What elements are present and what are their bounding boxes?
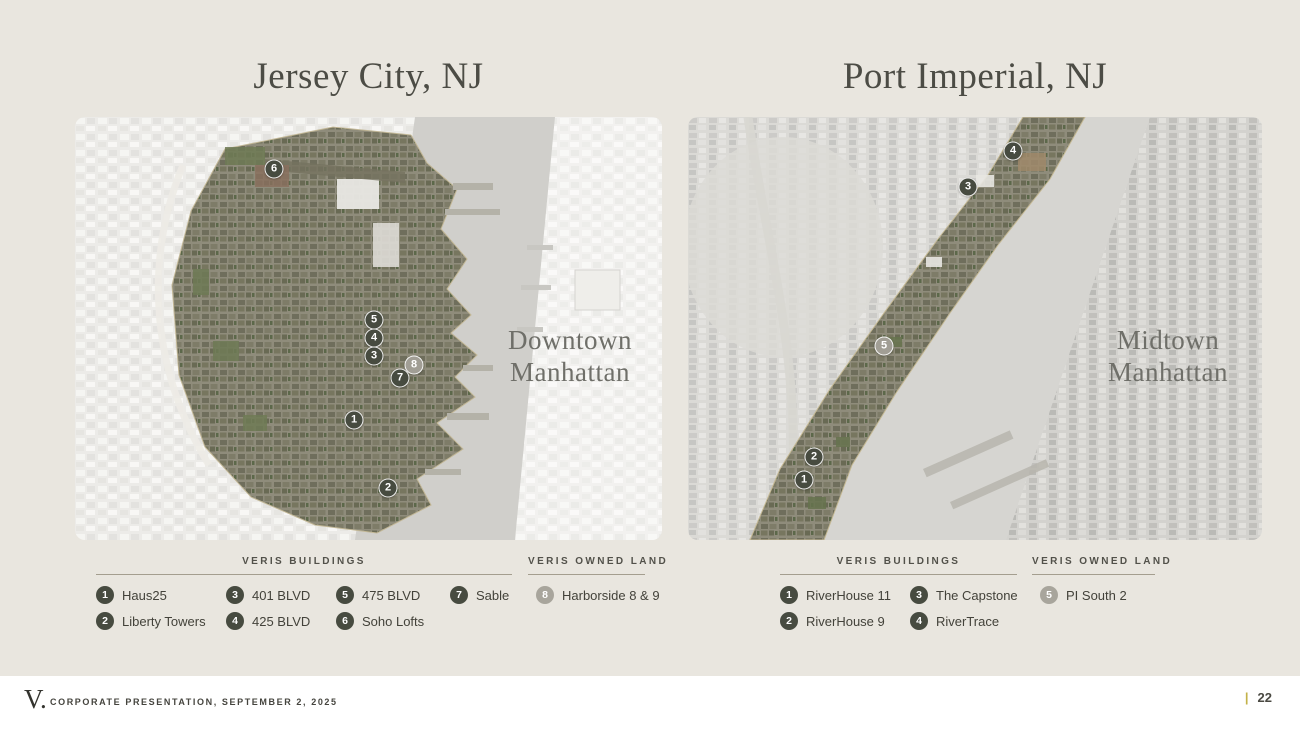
legend-header: VERIS OWNED LAND [528,556,645,575]
map-title-port-imperial: Port Imperial, NJ [688,55,1262,98]
legend-header: VERIS BUILDINGS [96,556,512,575]
legend-marker-5: 5 [1040,586,1058,604]
map-jersey-city[interactable]: Downtown Manhattan 65438712 [75,117,662,540]
legend-marker-2: 2 [780,612,798,630]
legend-marker-8: 8 [536,586,554,604]
legend-marker-4: 4 [226,612,244,630]
map-marker-4[interactable]: 4 [1004,142,1023,161]
legend-marker-7: 7 [450,586,468,604]
map-marker-2[interactable]: 2 [379,479,398,498]
legend-marker-6: 6 [336,612,354,630]
legend-jersey-city-buildings: VERIS BUILDINGS 1Haus252Liberty Towers34… [96,556,512,634]
legend-header: VERIS BUILDINGS [780,556,1017,575]
legend-item-label: Liberty Towers [122,614,206,629]
legend-item-label: 425 BLVD [252,614,310,629]
map-marker-4[interactable]: 4 [365,329,384,348]
map-marker-6[interactable]: 6 [265,160,284,179]
map-marker-5[interactable]: 5 [875,337,894,356]
legend-item: 2RiverHouse 9 [780,608,910,634]
legend-marker-2: 2 [96,612,114,630]
map-marker-3[interactable]: 3 [959,178,978,197]
legend-item: 1Haus25 [96,582,226,608]
legend-item: 2Liberty Towers [96,608,226,634]
legend-marker-3: 3 [226,586,244,604]
map-marker-5[interactable]: 5 [365,311,384,330]
legend-item: 8Harborside 8 & 9 [536,582,660,608]
legend-item-label: PI South 2 [1066,588,1127,603]
legend-item-label: The Capstone [936,588,1018,603]
map-marker-1[interactable]: 1 [795,471,814,490]
legend-item-label: RiverHouse 9 [806,614,885,629]
legend-header: VERIS OWNED LAND [1032,556,1155,575]
downtown-manhattan-label: Downtown Manhattan [475,324,662,388]
legend-port-imperial-owned-land: VERIS OWNED LAND 5PI South 2 [1032,556,1155,608]
legend-item-label: RiverHouse 11 [806,588,891,603]
legend-item: 6Soho Lofts [336,608,450,634]
legend-item-label: RiverTrace [936,614,999,629]
map-marker-1[interactable]: 1 [345,411,364,430]
slide: Jersey City, NJ Port Imperial, NJ [0,0,1300,730]
map-marker-3[interactable]: 3 [365,347,384,366]
legend-item-label: 475 BLVD [362,588,420,603]
legend-jersey-city-owned-land: VERIS OWNED LAND 8Harborside 8 & 9 [528,556,645,608]
legend-item-label: Haus25 [122,588,167,603]
page-number: 22 [1258,690,1272,705]
legend-marker-1: 1 [780,586,798,604]
map-port-imperial[interactable]: Midtown Manhattan 43521 [688,117,1262,540]
legend-item: 5475 BLVD [336,582,450,608]
veris-logo: V. [24,684,47,715]
legend-marker-3: 3 [910,586,928,604]
legend-item: 7Sable [450,582,512,608]
legend-marker-4: 4 [910,612,928,630]
footer-caption: CORPORATE PRESENTATION, SEPTEMBER 2, 202… [50,697,338,707]
legend-item-label: Sable [476,588,509,603]
map-marker-7[interactable]: 7 [391,369,410,388]
legend-port-imperial-buildings: VERIS BUILDINGS 1RiverHouse 112RiverHous… [780,556,1017,634]
map-marker-2[interactable]: 2 [805,448,824,467]
legend-item-label: 401 BLVD [252,588,310,603]
map-title-jersey-city: Jersey City, NJ [75,55,662,98]
legend-item: 3The Capstone [910,582,1018,608]
legend-item: 4425 BLVD [226,608,336,634]
midtown-manhattan-label: Midtown Manhattan [1073,324,1262,388]
legend-item-label: Soho Lofts [362,614,424,629]
legend-item-label: Harborside 8 & 9 [562,588,660,603]
legend-item: 5PI South 2 [1040,582,1155,608]
footer: V. CORPORATE PRESENTATION, SEPTEMBER 2, … [0,676,1300,730]
legend-item: 4RiverTrace [910,608,1018,634]
page-indicator: | 22 [1245,690,1272,705]
page-separator-bar: | [1245,690,1249,705]
legend-item: 3401 BLVD [226,582,336,608]
legend-marker-1: 1 [96,586,114,604]
legend-marker-5: 5 [336,586,354,604]
legend-item: 1RiverHouse 11 [780,582,910,608]
